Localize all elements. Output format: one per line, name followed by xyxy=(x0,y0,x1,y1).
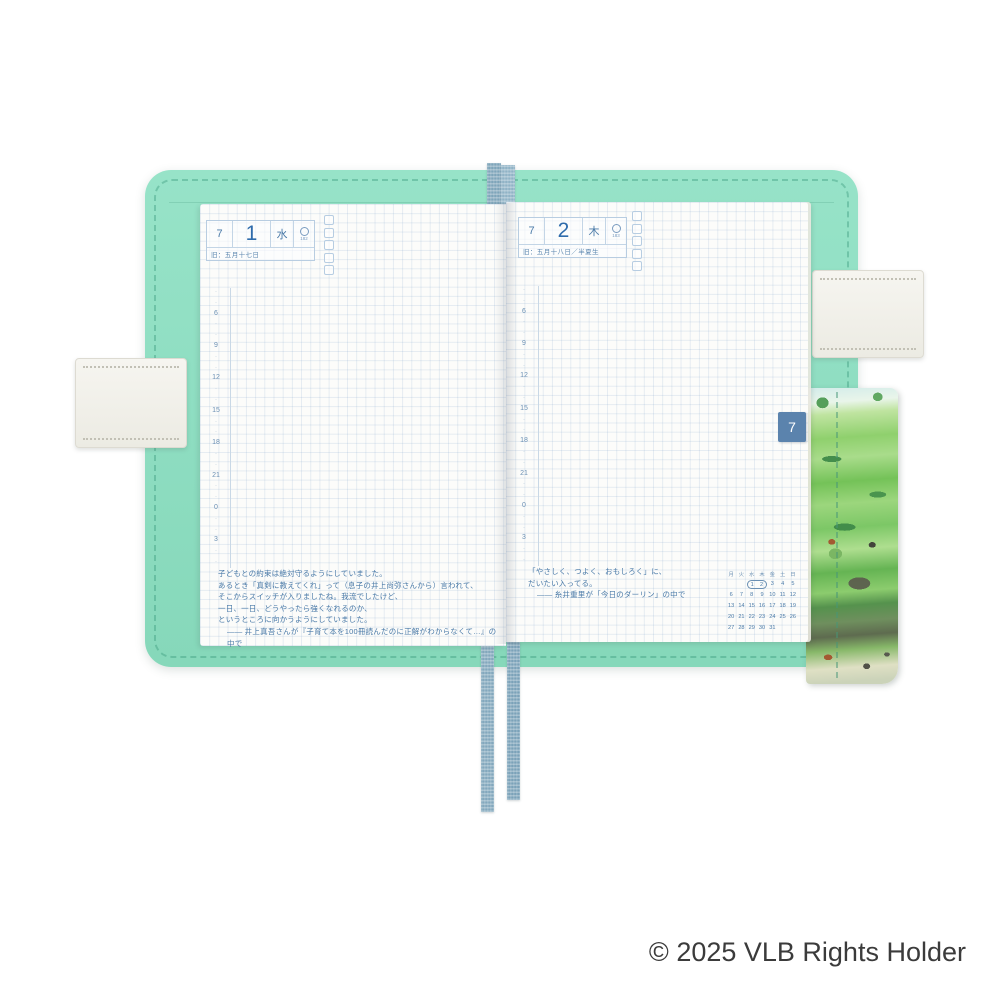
checkbox xyxy=(324,253,334,263)
calendar-day: 26 xyxy=(788,613,798,622)
time-dot: · xyxy=(206,319,226,330)
time-label: 15 xyxy=(206,406,226,417)
month-number: 7 xyxy=(519,218,545,244)
time-dot: · xyxy=(514,317,534,328)
time-dot: · xyxy=(206,417,226,428)
calendar-day-header: 月 xyxy=(728,570,733,578)
time-dot: · xyxy=(206,525,226,536)
old-calendar-date: 旧：五月十七日 xyxy=(207,247,314,260)
checkbox xyxy=(632,224,642,234)
time-dot: · xyxy=(514,296,534,307)
quote-line: 「やさしく、つよく、おもしろく」に、 xyxy=(528,566,728,578)
time-dot: · xyxy=(206,287,226,298)
calendar-day: 12 xyxy=(788,591,798,600)
time-label: 12 xyxy=(206,373,226,384)
calendar-day: 13 xyxy=(726,602,736,611)
time-dot: · xyxy=(206,384,226,395)
diary-page-left: 7 1 水 182 旧：五月十七日 ··6··9··12··15··18··21… xyxy=(200,204,506,646)
time-dot: · xyxy=(206,557,226,568)
time-dot: · xyxy=(514,393,534,404)
calendar-day: 14 xyxy=(736,602,746,611)
time-dot: · xyxy=(514,328,534,339)
day-of-year: 183 xyxy=(612,234,620,238)
time-label: 9 xyxy=(206,341,226,352)
time-label: 6 xyxy=(514,307,534,318)
time-dot: · xyxy=(514,425,534,436)
time-dot: · xyxy=(514,285,534,296)
time-dot: · xyxy=(206,298,226,309)
day-of-year: 182 xyxy=(300,237,308,241)
pen-holder-right xyxy=(812,270,924,358)
time-label: 12 xyxy=(514,371,534,382)
quote-line: 子どもとの約束は絶対守るようにしていました。 xyxy=(218,568,500,580)
calendar-day: 10 xyxy=(767,591,777,600)
daily-quote: 「やさしく、つよく、おもしろく」に、だいたい入ってる。―― 糸井重里が「今日のダ… xyxy=(528,566,728,601)
calendar-day: 30 xyxy=(757,624,767,633)
time-dot: · xyxy=(206,449,226,460)
moon-phase-icon xyxy=(300,227,309,236)
time-dot: · xyxy=(514,512,534,523)
old-calendar-date: 旧：五月十八日／半夏生 xyxy=(519,244,626,257)
time-dot: · xyxy=(514,447,534,458)
time-dot: · xyxy=(514,523,534,534)
checkbox xyxy=(632,249,642,259)
time-dot: · xyxy=(514,361,534,372)
calendar-day xyxy=(726,580,736,589)
time-label: 3 xyxy=(514,533,534,544)
time-dot: · xyxy=(514,415,534,426)
checkbox xyxy=(632,211,642,221)
month-number: 7 xyxy=(207,221,233,247)
quote-line: そこからスイッチが入りましたね。我流でしたけど、 xyxy=(218,591,500,603)
quote-line: ―― 糸井重里が「今日のダーリン」の中で xyxy=(528,589,728,601)
copyright-text: © 2025 VLB Rights Holder xyxy=(649,937,966,968)
calendar-day: 6 xyxy=(726,591,736,600)
calendar-day-header: 日 xyxy=(790,570,795,578)
time-dot: · xyxy=(206,481,226,492)
time-dot: · xyxy=(206,330,226,341)
calendar-day: 29 xyxy=(747,624,757,633)
time-dot: · xyxy=(514,350,534,361)
calendar-day: 1 xyxy=(747,580,757,589)
bookmark-ribbon-bottom-1 xyxy=(481,642,494,812)
calendar-day: 9 xyxy=(757,591,767,600)
time-dot: · xyxy=(514,490,534,501)
mini-month-calendar: 月火水木金土日123456789101112131415161718192021… xyxy=(726,568,798,634)
time-track: ··6··9··12··15··18··21··0··3·· xyxy=(514,285,534,566)
time-label: 0 xyxy=(206,503,226,514)
calendar-day: 23 xyxy=(757,613,767,622)
calendar-day-header: 土 xyxy=(780,570,785,578)
quote-line: あるとき「真剣に教えてくれ」って（息子の井上尚弥さんから）言われて、 xyxy=(218,580,500,592)
time-label: 21 xyxy=(206,471,226,482)
time-dot: · xyxy=(514,458,534,469)
pen-holder-left xyxy=(75,358,187,448)
calendar-day: 4 xyxy=(778,580,788,589)
task-checkboxes xyxy=(324,215,334,275)
bookmark-ribbon-bottom-2 xyxy=(507,642,520,800)
calendar-day-header: 金 xyxy=(770,570,775,578)
time-dot: · xyxy=(514,544,534,555)
checkbox xyxy=(632,261,642,271)
calendar-day xyxy=(778,624,788,633)
date-header-right: 7 2 木 183 旧：五月十八日／半夏生 xyxy=(518,217,627,258)
calendar-day: 17 xyxy=(767,602,777,611)
calendar-day: 18 xyxy=(778,602,788,611)
calendar-day: 2 xyxy=(757,580,767,589)
time-label: 3 xyxy=(206,535,226,546)
time-dot: · xyxy=(206,352,226,363)
time-dot: · xyxy=(206,427,226,438)
time-label: 21 xyxy=(514,469,534,480)
quote-line: ―― 井上真吾さんが『子育て本を100冊読んだのに正解がわからなくて…』の中で xyxy=(218,626,500,649)
calendar-day xyxy=(788,624,798,633)
time-track: ··6··9··12··15··18··21··0··3·· xyxy=(206,287,226,568)
calendar-day-header: 水 xyxy=(749,570,754,578)
date-header-left: 7 1 水 182 旧：五月十七日 xyxy=(206,220,315,261)
calendar-day xyxy=(736,580,746,589)
time-dot: · xyxy=(206,395,226,406)
time-dot: · xyxy=(514,555,534,566)
time-label: 6 xyxy=(206,309,226,320)
product-photo: 7 1 水 182 旧：五月十七日 ··6··9··12··15··18··21… xyxy=(0,0,1000,1000)
calendar-day: 3 xyxy=(767,580,777,589)
time-dot: · xyxy=(206,492,226,503)
quote-line: 一日、一日、どうやったら強くなれるのか、 xyxy=(218,603,500,615)
time-dot: · xyxy=(514,382,534,393)
weekday-label: 水 xyxy=(271,221,294,247)
calendar-day-header: 火 xyxy=(739,570,744,578)
calendar-day: 8 xyxy=(747,591,757,600)
time-dot: · xyxy=(514,479,534,490)
day-number: 1 xyxy=(233,221,271,247)
checkbox xyxy=(324,215,334,225)
time-label: 15 xyxy=(514,404,534,415)
calendar-day: 19 xyxy=(788,602,798,611)
task-checkboxes xyxy=(632,211,642,271)
moon-phase-cell: 182 xyxy=(294,221,314,247)
calendar-day: 7 xyxy=(736,591,746,600)
calendar-day: 24 xyxy=(767,613,777,622)
time-dot: · xyxy=(206,363,226,374)
calendar-day: 27 xyxy=(726,624,736,633)
bookmark-ribbon-top-1 xyxy=(487,163,501,209)
calendar-day: 31 xyxy=(767,624,777,633)
time-label: 18 xyxy=(206,438,226,449)
time-label: 9 xyxy=(514,339,534,350)
calendar-day: 28 xyxy=(736,624,746,633)
daily-quote: 子どもとの約束は絶対守るようにしていました。あるとき「真剣に教えてくれ」って（息… xyxy=(218,568,500,649)
calendar-day: 16 xyxy=(757,602,767,611)
day-number: 2 xyxy=(545,218,583,244)
month-index-tab: 7 xyxy=(778,412,806,442)
calendar-day: 15 xyxy=(747,602,757,611)
time-dot: · xyxy=(206,514,226,525)
time-label: 0 xyxy=(514,501,534,512)
calendar-day: 21 xyxy=(736,613,746,622)
time-dot: · xyxy=(206,546,226,557)
calendar-day-header: 木 xyxy=(759,570,764,578)
moon-phase-cell: 183 xyxy=(606,218,626,244)
calendar-day: 11 xyxy=(778,591,788,600)
quote-line: だいたい入ってる。 xyxy=(528,578,728,590)
diary-page-right: 7 2 木 183 旧：五月十八日／半夏生 ··6··9··12··15··18… xyxy=(506,202,808,642)
cover-artwork-pastoral-illustration xyxy=(806,388,898,684)
quote-line: というところに向かうようにしていました。 xyxy=(218,614,500,626)
checkbox xyxy=(324,228,334,238)
calendar-day: 25 xyxy=(778,613,788,622)
checkbox xyxy=(632,236,642,246)
moon-phase-icon xyxy=(612,224,621,233)
calendar-day: 22 xyxy=(747,613,757,622)
time-dot: · xyxy=(206,460,226,471)
weekday-label: 木 xyxy=(583,218,606,244)
calendar-day: 5 xyxy=(788,580,798,589)
calendar-day: 20 xyxy=(726,613,736,622)
time-label: 18 xyxy=(514,436,534,447)
checkbox xyxy=(324,240,334,250)
time-track-rule xyxy=(538,286,539,566)
time-track-rule xyxy=(230,288,231,568)
checkbox xyxy=(324,265,334,275)
